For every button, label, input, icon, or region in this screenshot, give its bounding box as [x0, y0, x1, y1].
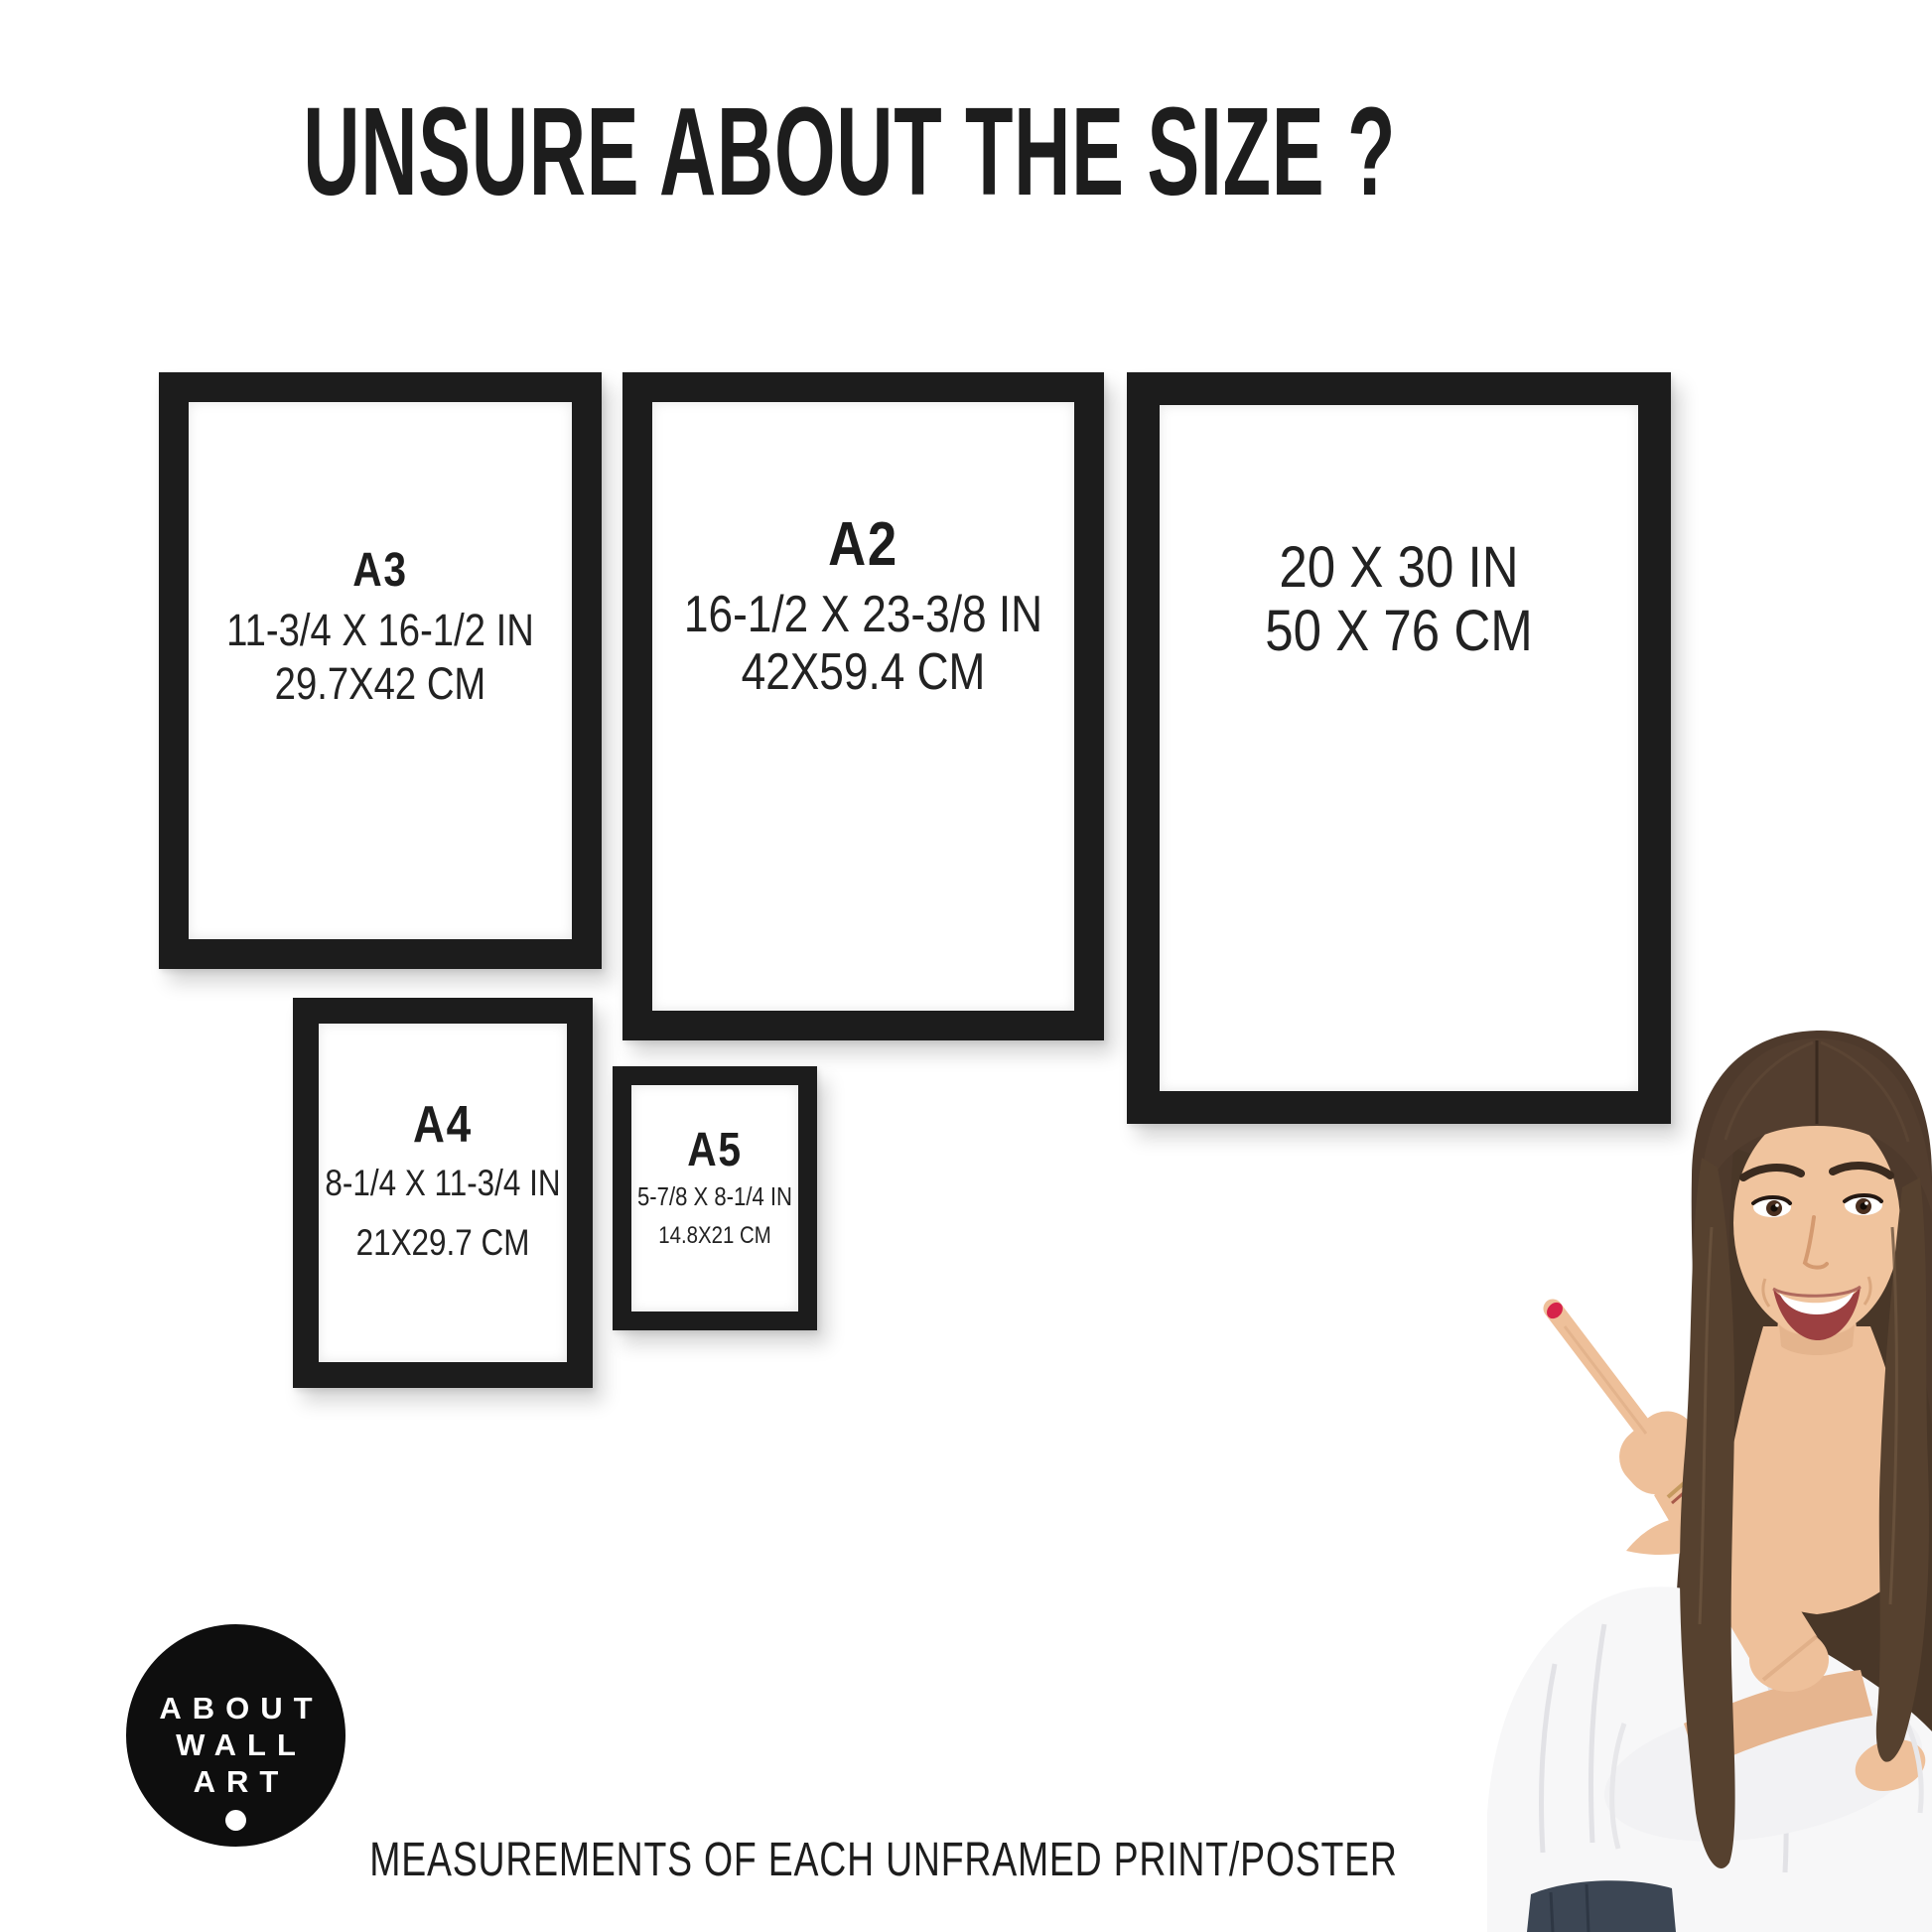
brand-logo-line3: ART: [148, 1763, 323, 1800]
frame-a3: A3 11-3/4 X 16-1/2 IN 29.7X42 CM: [159, 372, 602, 969]
frame-a3-inches: 11-3/4 X 16-1/2 IN: [226, 604, 534, 657]
brand-logo-text: ABOUT WALL ART: [148, 1690, 323, 1800]
frame-a2-text: A2 16-1/2 X 23-3/8 IN 42X59.4 CM: [684, 402, 1042, 1118]
frame-a5-size-label: A5: [687, 1123, 743, 1177]
frame-a3-text: A3 11-3/4 X 16-1/2 IN 29.7X42 CM: [217, 402, 543, 1080]
frame-a4-inches: 8-1/4 X 11-3/4 IN: [325, 1163, 560, 1204]
frame-20x30-inches: 20 X 30 IN: [1279, 536, 1518, 600]
frame-a4: A4 8-1/4 X 11-3/4 IN 21X29.7 CM: [293, 998, 593, 1388]
frame-a2-size-label: A2: [828, 509, 898, 580]
brand-logo-dot-icon: [225, 1810, 246, 1831]
brand-logo-line1: ABOUT: [148, 1690, 323, 1726]
frame-a4-text: A4 8-1/4 X 11-3/4 IN 21X29.7 CM: [338, 1024, 549, 1434]
brand-logo: ABOUT WALL ART: [126, 1624, 345, 1847]
size-guide-poster: UNSURE ABOUT THE SIZE ? A3 11-3/4 X 16-1…: [0, 0, 1932, 1932]
frame-a4-cm: 21X29.7 CM: [356, 1222, 530, 1264]
frame-20x30-cm: 50 X 76 CM: [1265, 600, 1533, 663]
frame-a3-cm: 29.7X42 CM: [275, 657, 486, 711]
frame-a2-cm: 42X59.4 CM: [742, 643, 986, 701]
frame-a2-inches: 16-1/2 X 23-3/8 IN: [684, 586, 1042, 643]
frame-a5-inches: 5-7/8 X 8-1/4 IN: [637, 1181, 792, 1212]
brand-logo-line2: WALL: [148, 1726, 323, 1763]
frame-a5-cm: 14.8X21 CM: [658, 1222, 770, 1250]
frame-a5-text: A5 5-7/8 X 8-1/4 IN 14.8X21 CM: [644, 1085, 786, 1349]
footer-note: MEASUREMENTS OF EACH UNFRAMED PRINT/POST…: [195, 1833, 1573, 1887]
woman-pointing-photo: [1436, 1029, 1932, 1932]
frame-a3-size-label: A3: [352, 543, 408, 598]
frame-a4-size-label: A4: [413, 1095, 473, 1155]
frame-20x30: 20 X 30 IN 50 X 76 CM: [1127, 372, 1671, 1124]
page-title: UNSURE ABOUT THE SIZE ?: [303, 89, 1335, 214]
frame-a2: A2 16-1/2 X 23-3/8 IN 42X59.4 CM: [622, 372, 1104, 1040]
frame-a5: A5 5-7/8 X 8-1/4 IN 14.8X21 CM: [613, 1066, 817, 1330]
